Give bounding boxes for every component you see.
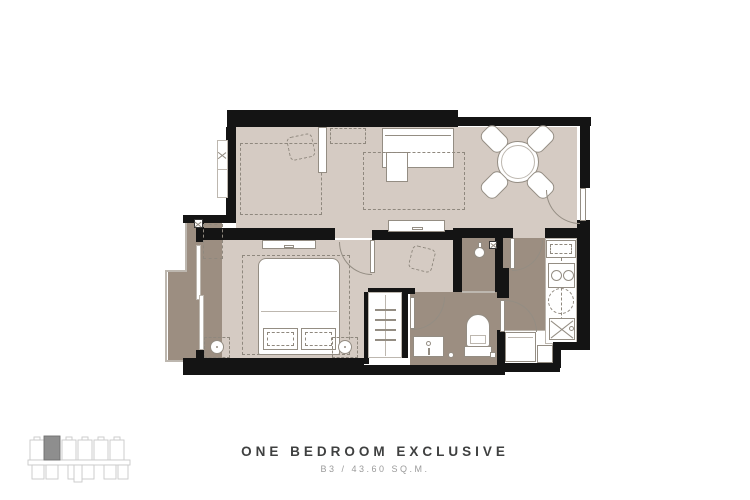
wall [227, 110, 458, 127]
ac-unit-icon [203, 224, 223, 259]
pillow-icon [301, 328, 336, 350]
wall [183, 358, 228, 375]
sprayer-icon [448, 352, 454, 358]
wardrobe [368, 292, 402, 358]
wall [500, 363, 560, 372]
toilet-tank [464, 346, 492, 357]
wall [458, 117, 591, 126]
wall [497, 268, 509, 298]
pillow-icon [263, 328, 298, 350]
wardrobe-hanger-icon [375, 309, 396, 311]
shower-glass-partition [462, 291, 495, 293]
entrance-door-leaf [580, 188, 586, 221]
wall [453, 238, 462, 292]
building-key-plan-icon [24, 432, 138, 486]
stove-burner-icon [563, 270, 574, 281]
page-title: ONE BEDROOM EXCLUSIVE [0, 444, 750, 459]
wall [453, 228, 513, 238]
unit-type-subtitle: B3 / 43.60 SQ.M. [0, 464, 750, 474]
hallway-door-leaf [510, 238, 515, 269]
window-cross-icon [217, 140, 228, 170]
table-lamp-icon [338, 340, 352, 354]
wall [577, 238, 590, 343]
wall [545, 228, 577, 238]
table-lamp-icon [210, 340, 224, 354]
sliding-door-panel [199, 295, 204, 350]
wardrobe-hanger-icon [375, 319, 396, 321]
floor-drain-icon [490, 352, 496, 358]
shower-head-icon [474, 247, 485, 258]
ac-marker-icon [194, 219, 203, 228]
rug-icon [363, 152, 465, 210]
floorplan-page: { "footer": { "title": "ONE BEDROOM EXCL… [0, 0, 750, 500]
wardrobe-hanger-icon [375, 329, 396, 331]
tv-console-icon [262, 240, 316, 249]
stove-burner-icon [551, 270, 562, 281]
wall [497, 330, 505, 365]
wall [580, 126, 590, 188]
wall [183, 215, 236, 223]
kitchen-cabinet [546, 240, 576, 258]
balcony-railing-icon [165, 270, 187, 272]
balcony-railing-icon [165, 270, 167, 362]
washer-icon [505, 332, 536, 362]
tv-console-icon [388, 220, 445, 232]
drain-marker-icon [489, 241, 497, 249]
sliding-partition [318, 127, 327, 173]
wall [204, 228, 335, 240]
floor-plan [163, 95, 593, 380]
bathroom-door-leaf [500, 300, 505, 332]
cabinet-dashed-icon [330, 128, 366, 144]
toilet-icon [466, 314, 490, 347]
sliding-door-panel [196, 245, 201, 300]
bedroom-door-leaf [370, 240, 375, 273]
under-counter-circle [548, 288, 574, 314]
wall [402, 292, 408, 358]
wall [553, 342, 590, 350]
cabinet-box [537, 345, 553, 363]
bathroom-door-leaf [410, 297, 415, 329]
faucet-icon [569, 326, 574, 331]
balcony-railing-icon [185, 220, 187, 272]
stove-icon [548, 263, 575, 288]
vanity-sink-icon [413, 336, 444, 357]
wall [363, 365, 505, 375]
wardrobe-hanger-icon [375, 339, 396, 341]
wall [225, 358, 364, 375]
